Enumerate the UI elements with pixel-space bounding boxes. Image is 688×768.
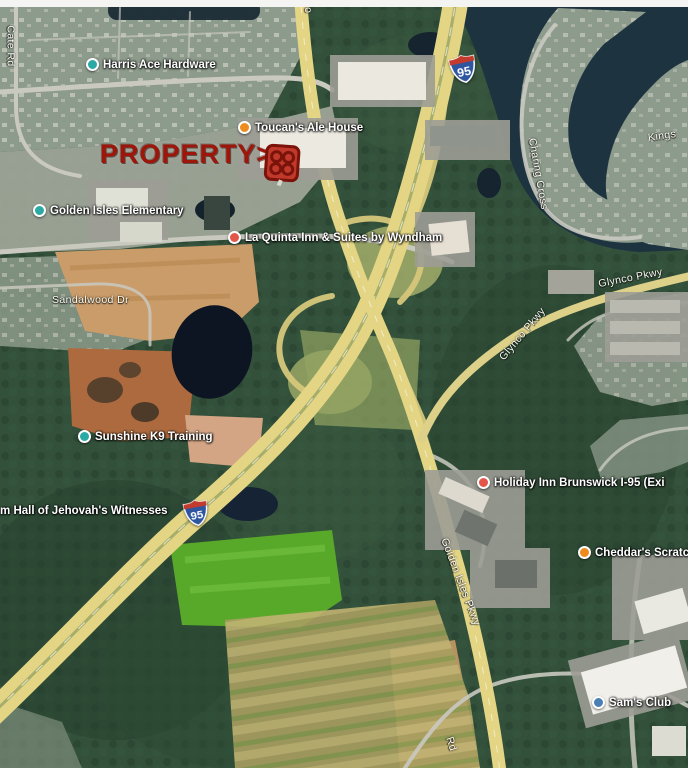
satellite-map[interactable]: PROPERTY> 95 95 Harris Ace Hardware Touc… (0, 0, 688, 768)
poi-name: dom Hall of Jehovah's Witnesses (0, 505, 168, 517)
poi-label-la-quinta[interactable]: La Quinta Inn & Suites by Wyndham (228, 231, 442, 244)
poi-name: Sam's Club (609, 697, 671, 709)
poi-label-holiday-inn[interactable]: Holiday Inn Brunswick I-95 (Exi (477, 476, 665, 489)
warehouse-club-icon (592, 696, 605, 709)
road-label-cate-rd: Cate Rd (5, 25, 17, 66)
poi-name: Cheddar's Scratc (595, 547, 688, 559)
interstate-95-shield: 95 (182, 497, 211, 529)
poi-name: Golden Isles Elementary (50, 205, 184, 217)
poi-name: La Quinta Inn & Suites by Wyndham (245, 232, 442, 244)
property-marker-badge (263, 143, 302, 187)
poi-label-sunshine-k9-training[interactable]: Sunshine K9 Training (78, 430, 213, 443)
image-top-border (0, 0, 688, 7)
restaurant-icon (578, 546, 591, 559)
terrain-layer (0, 0, 688, 768)
poi-label-kingdom-hall[interactable]: dom Hall of Jehovah's Witnesses (0, 505, 168, 517)
poi-name: Toucan's Ale House (255, 122, 363, 134)
poi-label-harris-ace-hardware[interactable]: Harris Ace Hardware (86, 58, 216, 71)
poi-name: Sunshine K9 Training (95, 431, 213, 443)
business-icon (78, 430, 91, 443)
school-icon (33, 204, 46, 217)
hotel-icon (228, 231, 241, 244)
road-label-sandalwood-dr: Sandalwood Dr (52, 294, 129, 306)
hardware-store-icon (86, 58, 99, 71)
hotel-icon (477, 476, 490, 489)
poi-label-cheddars[interactable]: Cheddar's Scratc (578, 546, 688, 559)
poi-label-sams-club[interactable]: Sam's Club (592, 696, 671, 709)
poi-label-golden-isles-elementary[interactable]: Golden Isles Elementary (33, 204, 184, 217)
restaurant-icon (238, 121, 251, 134)
property-annotation: PROPERTY> (100, 139, 273, 170)
poi-label-toucans-ale-house[interactable]: Toucan's Ale House (238, 121, 363, 134)
poi-name: Holiday Inn Brunswick I-95 (Exi (494, 477, 665, 489)
poi-name: Harris Ace Hardware (103, 59, 216, 71)
